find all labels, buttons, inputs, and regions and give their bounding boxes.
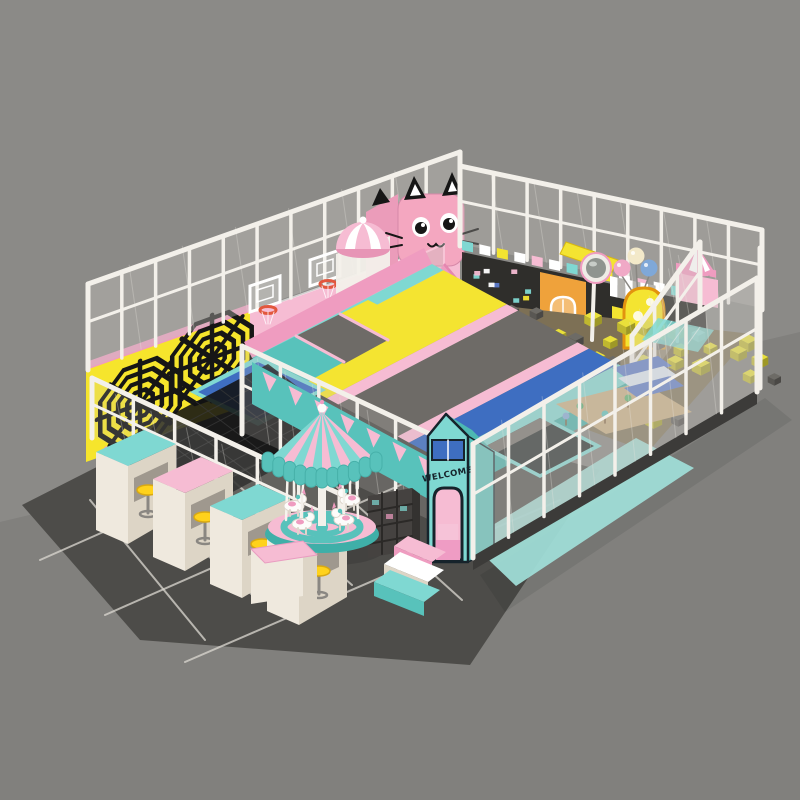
climbing-hold	[525, 289, 531, 294]
climbing-hold	[523, 296, 529, 301]
canopy-scallop	[305, 467, 317, 487]
balloon-highlight	[617, 263, 621, 267]
table-front	[210, 506, 242, 598]
horse-mane	[304, 513, 308, 517]
horse-saddle	[342, 516, 350, 521]
canopy-scallop	[348, 461, 360, 481]
awning-stripe	[618, 278, 626, 300]
cat-pupil-right	[443, 218, 455, 230]
balloon	[628, 248, 645, 265]
cat-pupil-left	[415, 222, 427, 234]
horse-mane	[338, 509, 342, 513]
playground-render-stage: WELCOME	[0, 0, 800, 800]
climbing-hold	[474, 271, 480, 276]
canopy-finial	[318, 404, 327, 413]
indoor-playground-3d-render: WELCOME	[0, 0, 800, 800]
canopy-scallop	[273, 457, 285, 477]
canopy-scallop	[294, 465, 306, 485]
mirror-pole	[592, 282, 594, 340]
climbing-hold	[513, 298, 519, 303]
balloon-highlight	[631, 251, 635, 255]
canopy-scallop	[262, 452, 274, 472]
canopy-finial-tip	[320, 400, 324, 404]
door-step	[438, 524, 458, 540]
mirror-glass	[586, 258, 606, 278]
dome-knob	[360, 217, 367, 224]
climbing-hold	[484, 269, 490, 274]
cubby-item	[386, 514, 393, 519]
cat-glint-left	[421, 223, 425, 227]
climbing-hold	[511, 269, 517, 274]
table-front	[153, 479, 185, 571]
canopy-scallop	[370, 452, 382, 472]
canopy-scallop	[327, 467, 339, 487]
cat-glint-right	[449, 219, 453, 223]
cubby-item	[400, 506, 407, 511]
mirror-sheen	[589, 262, 597, 267]
canopy-scallop	[316, 468, 328, 488]
cubby-item	[372, 500, 379, 505]
horse-saddle	[348, 496, 356, 501]
horse-mane	[296, 495, 300, 499]
horse-saddle	[288, 502, 296, 507]
canopy-scallop	[338, 465, 350, 485]
balloon-highlight	[644, 263, 648, 267]
climbing-hold	[489, 283, 495, 288]
balloon	[641, 260, 658, 277]
awning-stripe	[610, 276, 618, 298]
canopy-scallop	[359, 457, 371, 477]
table-front	[96, 452, 128, 544]
balloon	[614, 260, 631, 277]
horse-saddle	[296, 520, 304, 525]
canopy-scallop	[284, 461, 296, 481]
